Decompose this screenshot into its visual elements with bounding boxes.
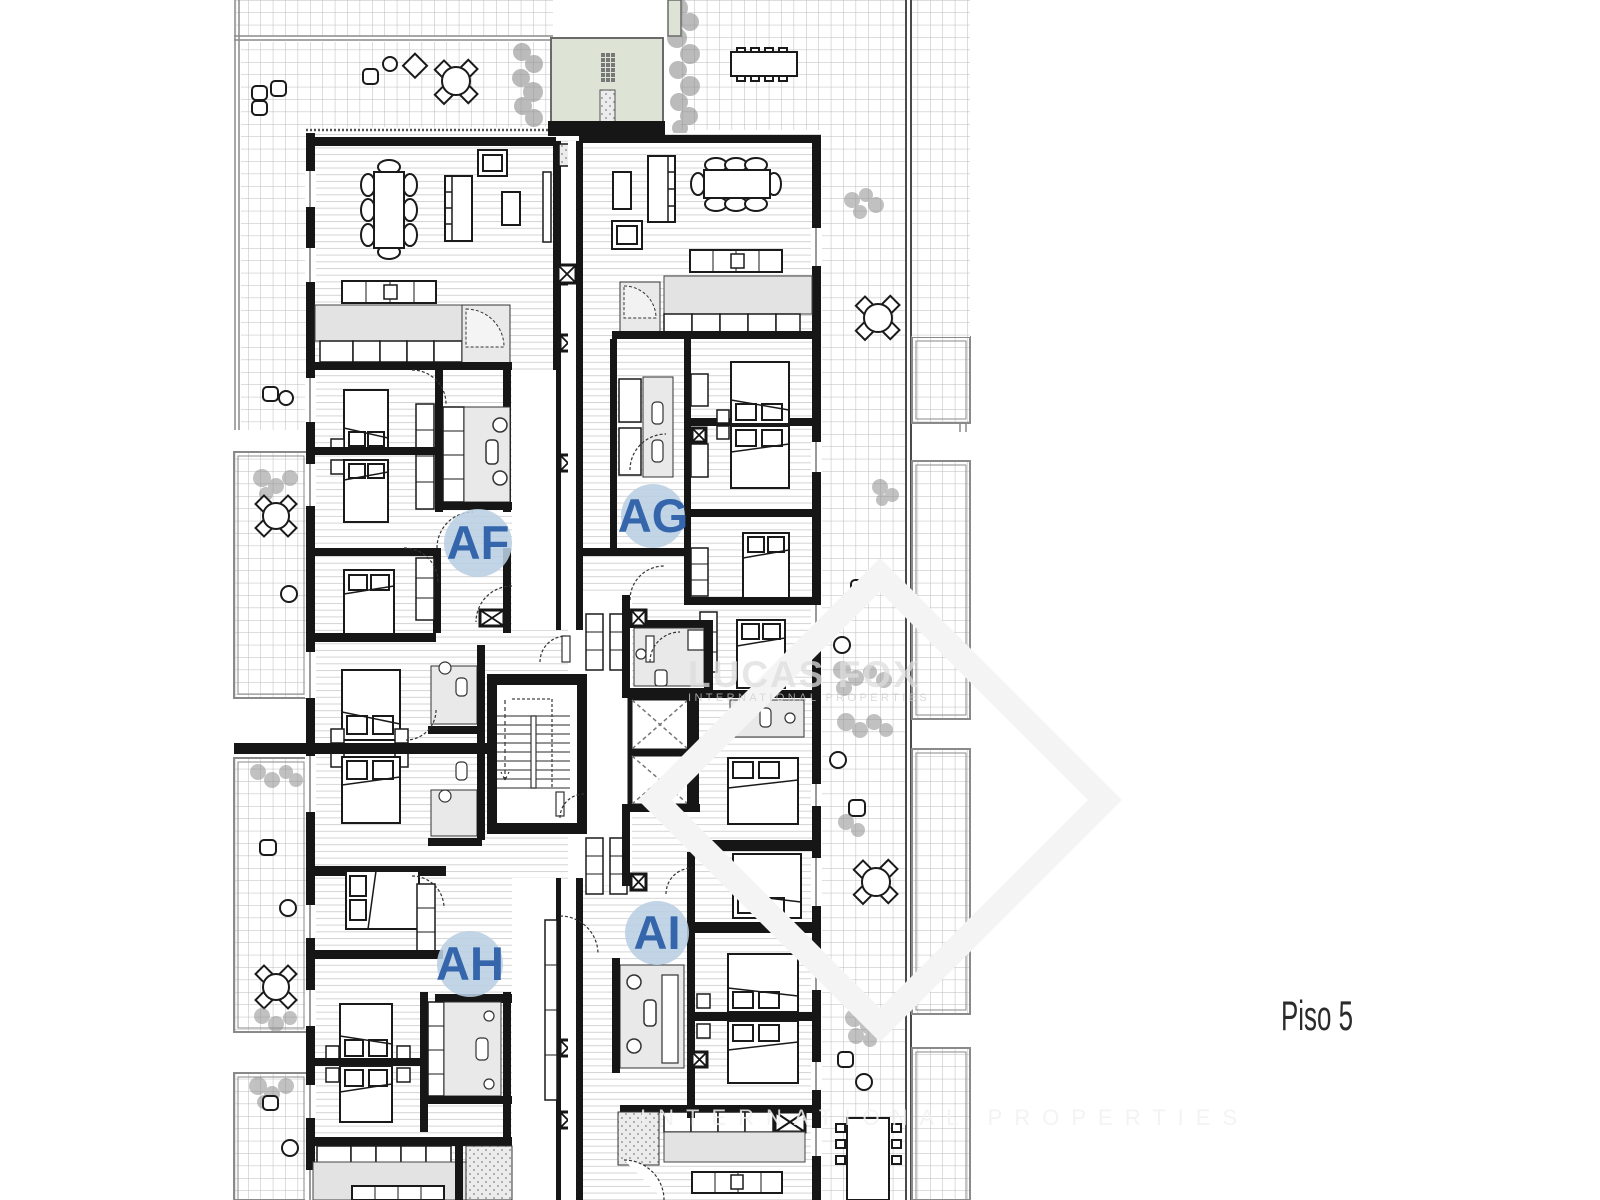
svg-text:AF: AF	[447, 516, 510, 569]
svg-text:AG: AG	[618, 489, 689, 542]
svg-text:Piso 5: Piso 5	[1281, 992, 1353, 1039]
svg-text:INTERNATIONAL PROPERTIES: INTERNATIONAL PROPERTIES	[640, 1105, 1249, 1130]
svg-text:LUCAS FOX: LUCAS FOX	[688, 654, 920, 695]
svg-text:AI: AI	[634, 906, 681, 959]
svg-text:AH: AH	[436, 937, 504, 990]
svg-text:INTERNATIONAL PROPERTIES: INTERNATIONAL PROPERTIES	[688, 692, 930, 704]
